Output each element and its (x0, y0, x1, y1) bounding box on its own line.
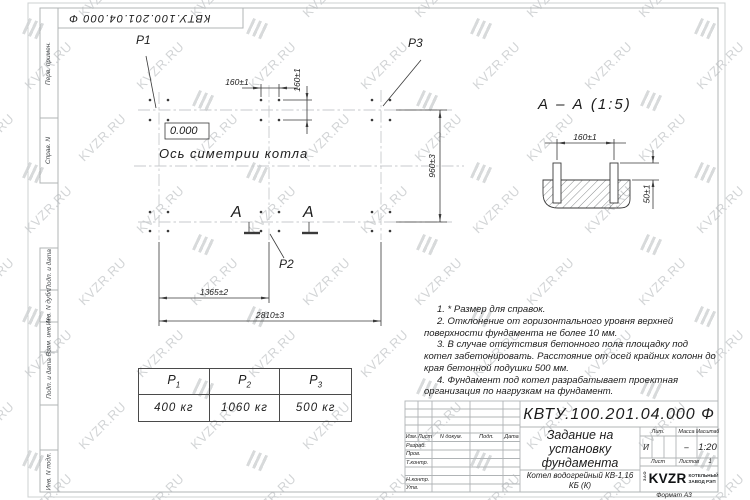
format-note: Формат А3 (630, 492, 718, 499)
kvzr-logo-prefix: ЗАО (642, 476, 647, 481)
title-block-doc-number: КВТУ.100.201.04.000 Ф (520, 402, 718, 427)
kvzr-logo-subtitle: КОТЕЛЬНЫЙ ЗАВОД РЭП (689, 473, 719, 484)
side-field-vzam-inv: Взам. инв. N (40, 322, 58, 352)
dim-section-bolt-height: 50±1 (629, 189, 663, 199)
drawing-sheet: KVZR.RUKVZR.RUKVZR.RUKVZR.RUKVZR.RUKVZR.… (0, 0, 750, 500)
dim-bolt-spacing-v: 160±1 (280, 75, 314, 85)
note-2: 2. Отклонение от горизонтального уровня … (424, 316, 718, 340)
kvzr-logo-subtitle-line2: ЗАВОД РЭП (689, 479, 719, 485)
section-view-title: А – А (1:5) (538, 96, 632, 113)
tb-col-ndokum: N докум. (432, 433, 470, 442)
side-field-podp-data-2: Подп. и дата (40, 352, 58, 405)
note-1: 1. * Размер для справок. (424, 304, 718, 316)
side-field-podp-data-1: Подп. и дата (40, 248, 58, 290)
load-table: P1 P2 P3 400 кг 1060 кг 500 кг (138, 368, 352, 422)
kvzr-logo: ЗАО KVZR КОТЕЛЬНЫЙ ЗАВОД РЭП (641, 466, 717, 491)
section-cut-letter-right: А (303, 204, 314, 222)
tb-sheets-value: 1 (702, 458, 718, 466)
tb-role-prov: Пров. (406, 451, 421, 457)
tb-lit-value: И (640, 436, 652, 458)
dim-plan-full-2810: 2810±3 (244, 310, 296, 320)
tb-col-izm: Изм. (405, 433, 418, 442)
note-4: 4. Фундамент под котел разрабатывает про… (424, 375, 718, 399)
dim-plan-depth-960: 960±3 (414, 161, 450, 171)
note-3: 3. В случае отсутствия бетонного пола пл… (424, 339, 718, 374)
load-table-header-p3: P3 (280, 369, 351, 395)
title-block-title: Задание на установку фундамента (522, 429, 638, 469)
tb-scale-label: Масштаб (697, 428, 718, 436)
title-block-product: Котел водогрейный КВ-1,16 КБ (К) (522, 470, 638, 492)
load-table-value-p1: 400 кг (139, 395, 210, 421)
tb-mass-label: Масса (676, 428, 697, 436)
load-table-header-p2: P2 (210, 369, 281, 395)
load-point-p2-label: P2 (279, 257, 294, 271)
tb-role-tkontr: Т.контр. (406, 460, 428, 466)
tb-sheet-label: Лист (640, 458, 676, 466)
kvzr-logo-name: KVZR (649, 471, 687, 486)
side-field-sprav-n: Справ. N (40, 118, 58, 183)
dim-bolt-spacing-h: 160±1 (219, 77, 255, 87)
side-field-inv-podl: Инв. N подл. (40, 450, 58, 492)
load-table-value-p2: 1060 кг (210, 395, 281, 421)
dim-plan-half-1365: 1365±2 (193, 287, 235, 297)
top-stamp-doc-number: КВТУ.100.201.04.000 Ф (58, 8, 243, 28)
side-field-inv-dubl: Инв. N дубл. (40, 290, 58, 322)
tb-role-razrab: Разраб. (406, 443, 426, 449)
boiler-symmetry-axis-label: Ось симетрии котла (159, 146, 308, 161)
tb-col-data: Дата (503, 433, 520, 442)
dim-section-bolt-spacing: 160±1 (565, 132, 605, 142)
tb-sheets-label: Листов (676, 458, 702, 466)
tb-col-podp: Подп. (470, 433, 503, 442)
load-table-value-p3: 500 кг (280, 395, 351, 421)
technical-notes: 1. * Размер для справок. 2. Отклонение о… (424, 304, 718, 398)
tb-role-utv: Утв. (406, 485, 419, 491)
tb-lit-label: Лит. (640, 428, 676, 436)
elevation-mark: 0.000 (165, 123, 209, 139)
load-point-p1-label: P1 (136, 33, 151, 47)
load-table-header-p1: P1 (139, 369, 210, 395)
side-field-perv-primen: Перв. примен. (40, 8, 58, 118)
tb-col-list: Лист (418, 433, 432, 442)
tb-mass-value: – (676, 436, 697, 458)
load-point-p3-label: P3 (408, 36, 423, 50)
section-cut-letter-left: А (231, 204, 242, 222)
tb-scale-value: 1:20 (697, 436, 718, 458)
tb-role-nkontr: Н.контр. (406, 477, 429, 483)
